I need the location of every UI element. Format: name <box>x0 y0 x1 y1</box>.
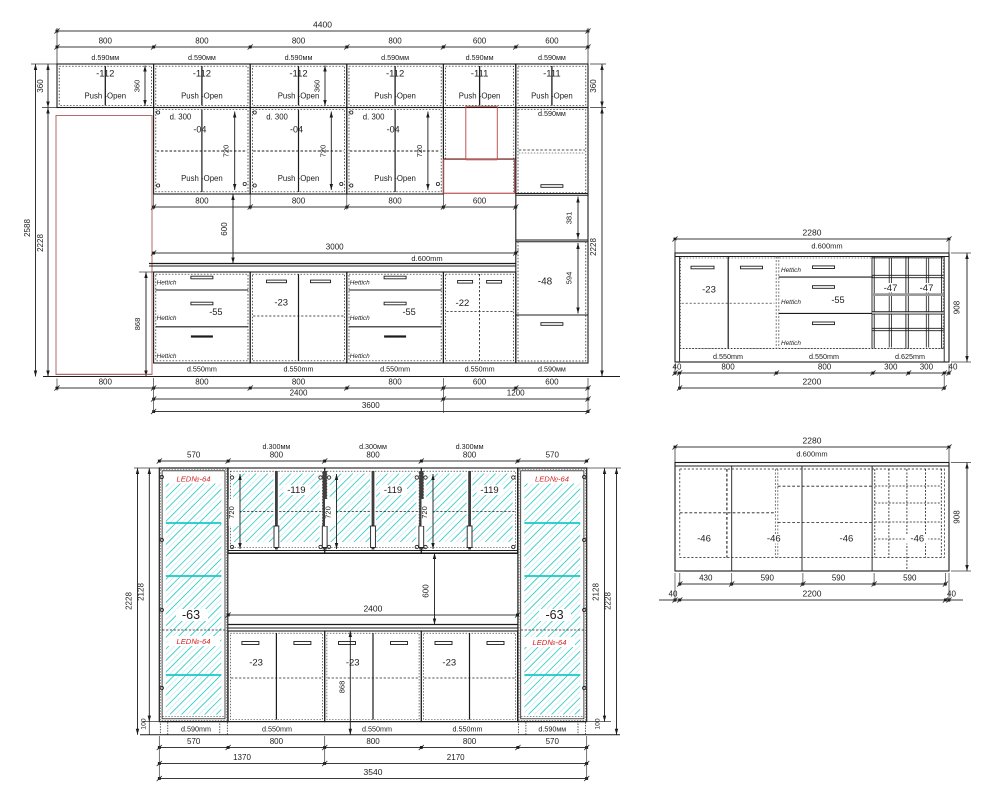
svg-text:2228: 2228 <box>125 592 134 610</box>
svg-text:d.590мм: d.590мм <box>538 725 566 734</box>
svg-text:Push -Open: Push -Open <box>374 174 416 183</box>
svg-text:d.300мм: d.300мм <box>456 442 484 451</box>
svg-text:-119: -119 <box>287 485 305 496</box>
svg-text:600: 600 <box>422 584 431 598</box>
svg-text:-119: -119 <box>480 485 498 496</box>
svg-text:800: 800 <box>99 378 113 387</box>
svg-text:-63: -63 <box>545 608 563 622</box>
svg-text:-46: -46 <box>697 534 711 545</box>
svg-text:800: 800 <box>388 378 402 387</box>
svg-text:360: 360 <box>313 80 322 93</box>
svg-text:Push -Open: Push -Open <box>278 174 320 183</box>
svg-text:590: 590 <box>832 574 846 583</box>
svg-text:d.590мм: d.590мм <box>538 53 566 62</box>
svg-text:d.550mm: d.550mm <box>380 365 410 374</box>
svg-text:800: 800 <box>463 737 477 746</box>
svg-text:2228: 2228 <box>36 234 45 252</box>
svg-text:800: 800 <box>195 378 209 387</box>
svg-text:2400: 2400 <box>290 389 308 398</box>
svg-text:d.550mm: d.550mm <box>713 352 743 361</box>
svg-text:-112: -112 <box>96 69 114 80</box>
svg-text:2200: 2200 <box>803 589 822 599</box>
svg-text:360: 360 <box>589 79 598 93</box>
svg-text:600: 600 <box>545 378 559 387</box>
svg-text:100: 100 <box>595 718 602 730</box>
svg-text:800: 800 <box>388 37 402 46</box>
svg-text:Push -Open: Push -Open <box>181 174 223 183</box>
svg-text:40: 40 <box>673 363 682 372</box>
svg-text:1200: 1200 <box>507 389 525 398</box>
svg-text:40: 40 <box>949 363 958 372</box>
svg-text:Hettich: Hettich <box>157 353 177 360</box>
svg-text:800: 800 <box>195 37 209 46</box>
svg-text:-04: -04 <box>290 125 303 135</box>
svg-text:Push -Open: Push -Open <box>374 92 416 101</box>
svg-text:300: 300 <box>920 363 934 372</box>
svg-text:-112: -112 <box>193 69 211 80</box>
svg-text:Hettich: Hettich <box>781 340 801 347</box>
svg-text:600: 600 <box>545 37 559 46</box>
svg-text:570: 570 <box>187 451 201 460</box>
svg-text:800: 800 <box>366 451 380 460</box>
svg-text:360: 360 <box>36 79 45 93</box>
svg-text:590: 590 <box>761 574 775 583</box>
svg-text:720: 720 <box>222 145 231 158</box>
svg-text:800: 800 <box>366 737 380 746</box>
svg-text:720: 720 <box>420 506 429 519</box>
svg-text:-55: -55 <box>402 307 415 317</box>
svg-text:Hettich: Hettich <box>781 299 801 306</box>
svg-text:-48: -48 <box>538 277 553 288</box>
svg-text:d.300мм: d.300мм <box>262 442 290 451</box>
svg-text:d.600mm: d.600mm <box>411 254 442 263</box>
svg-text:Push -Open: Push -Open <box>84 92 126 101</box>
svg-text:d. 300: d. 300 <box>363 113 385 122</box>
svg-text:d.590мм: d.590мм <box>188 53 216 62</box>
svg-text:2170: 2170 <box>447 753 465 762</box>
svg-text:-04: -04 <box>193 125 206 135</box>
svg-text:570: 570 <box>187 737 201 746</box>
svg-text:800: 800 <box>818 363 832 372</box>
svg-text:d.590мм: d.590мм <box>466 53 494 62</box>
svg-text:Hettich: Hettich <box>781 267 801 274</box>
svg-text:-23: -23 <box>249 658 263 669</box>
svg-text:720: 720 <box>324 506 333 519</box>
svg-text:-04: -04 <box>387 125 400 135</box>
svg-text:2400: 2400 <box>363 604 382 614</box>
svg-text:-112: -112 <box>289 69 307 80</box>
svg-text:40: 40 <box>947 590 956 599</box>
svg-text:590: 590 <box>903 574 917 583</box>
svg-text:d.550mm: d.550mm <box>809 352 839 361</box>
svg-text:3000: 3000 <box>326 243 344 252</box>
svg-text:800: 800 <box>292 37 306 46</box>
svg-text:Hettich: Hettich <box>157 315 177 322</box>
svg-text:2280: 2280 <box>803 436 822 446</box>
svg-text:d.590мм: d.590мм <box>538 109 566 118</box>
svg-text:868: 868 <box>133 318 142 331</box>
svg-text:2128: 2128 <box>136 583 145 601</box>
svg-text:570: 570 <box>546 451 560 460</box>
svg-text:-46: -46 <box>767 534 781 545</box>
svg-text:570: 570 <box>546 737 560 746</box>
svg-text:Push -Open: Push -Open <box>531 92 573 101</box>
svg-text:4400: 4400 <box>313 20 332 30</box>
svg-text:720: 720 <box>318 145 327 158</box>
svg-text:800: 800 <box>270 451 284 460</box>
svg-text:Push -Open: Push -Open <box>181 92 223 101</box>
svg-text:-111: -111 <box>543 69 561 80</box>
svg-text:d.600mm: d.600mm <box>796 450 827 459</box>
svg-text:d.550mm: d.550mm <box>262 725 292 734</box>
svg-text:-55: -55 <box>209 307 222 317</box>
svg-text:-47: -47 <box>920 283 934 294</box>
svg-text:381: 381 <box>565 212 574 225</box>
svg-text:3540: 3540 <box>364 767 383 777</box>
svg-text:800: 800 <box>721 363 735 372</box>
svg-text:2280: 2280 <box>803 228 822 238</box>
svg-text:300: 300 <box>884 363 898 372</box>
svg-text:d.550mm: d.550mm <box>284 365 314 374</box>
svg-text:720: 720 <box>415 145 424 158</box>
svg-text:908: 908 <box>953 300 962 314</box>
svg-text:-112: -112 <box>386 69 404 80</box>
svg-text:720: 720 <box>227 506 236 519</box>
svg-text:100: 100 <box>141 718 148 730</box>
svg-text:-46: -46 <box>840 534 854 545</box>
svg-text:d.625mm: d.625mm <box>895 352 925 361</box>
svg-text:430: 430 <box>699 574 713 583</box>
svg-text:908: 908 <box>953 510 962 524</box>
svg-text:-119: -119 <box>384 485 402 496</box>
svg-text:d.550mm: d.550mm <box>187 365 217 374</box>
svg-text:d.550mm: d.550mm <box>453 725 483 734</box>
svg-text:-23: -23 <box>346 658 360 669</box>
svg-text:LED№-64: LED№-64 <box>535 475 569 484</box>
svg-text:-63: -63 <box>182 608 200 622</box>
svg-text:2128: 2128 <box>592 583 601 601</box>
svg-text:d. 300: d. 300 <box>170 113 192 122</box>
svg-text:-22: -22 <box>456 298 470 309</box>
svg-text:800: 800 <box>270 737 284 746</box>
svg-text:d.550mm: d.550mm <box>362 725 392 734</box>
svg-text:-23: -23 <box>274 298 288 309</box>
svg-text:-46: -46 <box>910 534 924 545</box>
svg-text:800: 800 <box>195 197 209 206</box>
svg-text:800: 800 <box>292 197 306 206</box>
svg-text:d.590мм: d.590мм <box>538 365 566 374</box>
svg-text:d.590мм: d.590мм <box>91 53 119 62</box>
svg-text:d.550mm: d.550mm <box>465 365 495 374</box>
svg-text:40: 40 <box>669 590 678 599</box>
svg-text:Hettich: Hettich <box>350 353 370 360</box>
svg-text:600: 600 <box>473 37 487 46</box>
svg-text:Hettich: Hettich <box>157 280 177 287</box>
svg-text:600: 600 <box>220 222 229 236</box>
svg-text:LED№-64: LED№-64 <box>533 638 567 647</box>
svg-text:360: 360 <box>133 80 142 93</box>
svg-text:LED№-64: LED№-64 <box>177 637 211 646</box>
svg-text:-23: -23 <box>702 285 716 296</box>
svg-text:d.590мм: d.590мм <box>285 53 313 62</box>
svg-text:d.600mm: d.600mm <box>811 242 842 251</box>
svg-text:600: 600 <box>473 378 487 387</box>
svg-text:-47: -47 <box>884 283 898 294</box>
svg-text:868: 868 <box>337 681 346 694</box>
svg-text:-23: -23 <box>442 658 456 669</box>
svg-text:800: 800 <box>99 37 113 46</box>
svg-text:2228: 2228 <box>604 592 613 610</box>
svg-text:600: 600 <box>473 197 487 206</box>
svg-text:594: 594 <box>565 272 574 285</box>
svg-text:d.300мм: d.300мм <box>359 442 387 451</box>
svg-text:Hettich: Hettich <box>350 315 370 322</box>
svg-text:800: 800 <box>292 378 306 387</box>
svg-text:LED№-64: LED№-64 <box>177 475 211 484</box>
svg-text:1370: 1370 <box>233 753 251 762</box>
svg-text:3600: 3600 <box>362 401 380 410</box>
svg-text:Push -Open: Push -Open <box>459 92 501 101</box>
svg-text:800: 800 <box>388 197 402 206</box>
svg-text:Hettich: Hettich <box>350 280 370 287</box>
svg-text:d. 300: d. 300 <box>266 113 288 122</box>
svg-text:2588: 2588 <box>23 219 32 237</box>
svg-text:2228: 2228 <box>589 238 598 256</box>
svg-text:d.590mm: d.590mm <box>181 725 211 734</box>
svg-text:-111: -111 <box>471 69 489 80</box>
svg-text:2200: 2200 <box>802 377 821 387</box>
svg-text:d.590мм: d.590мм <box>381 53 409 62</box>
svg-text:800: 800 <box>463 451 477 460</box>
svg-text:-55: -55 <box>831 295 844 305</box>
